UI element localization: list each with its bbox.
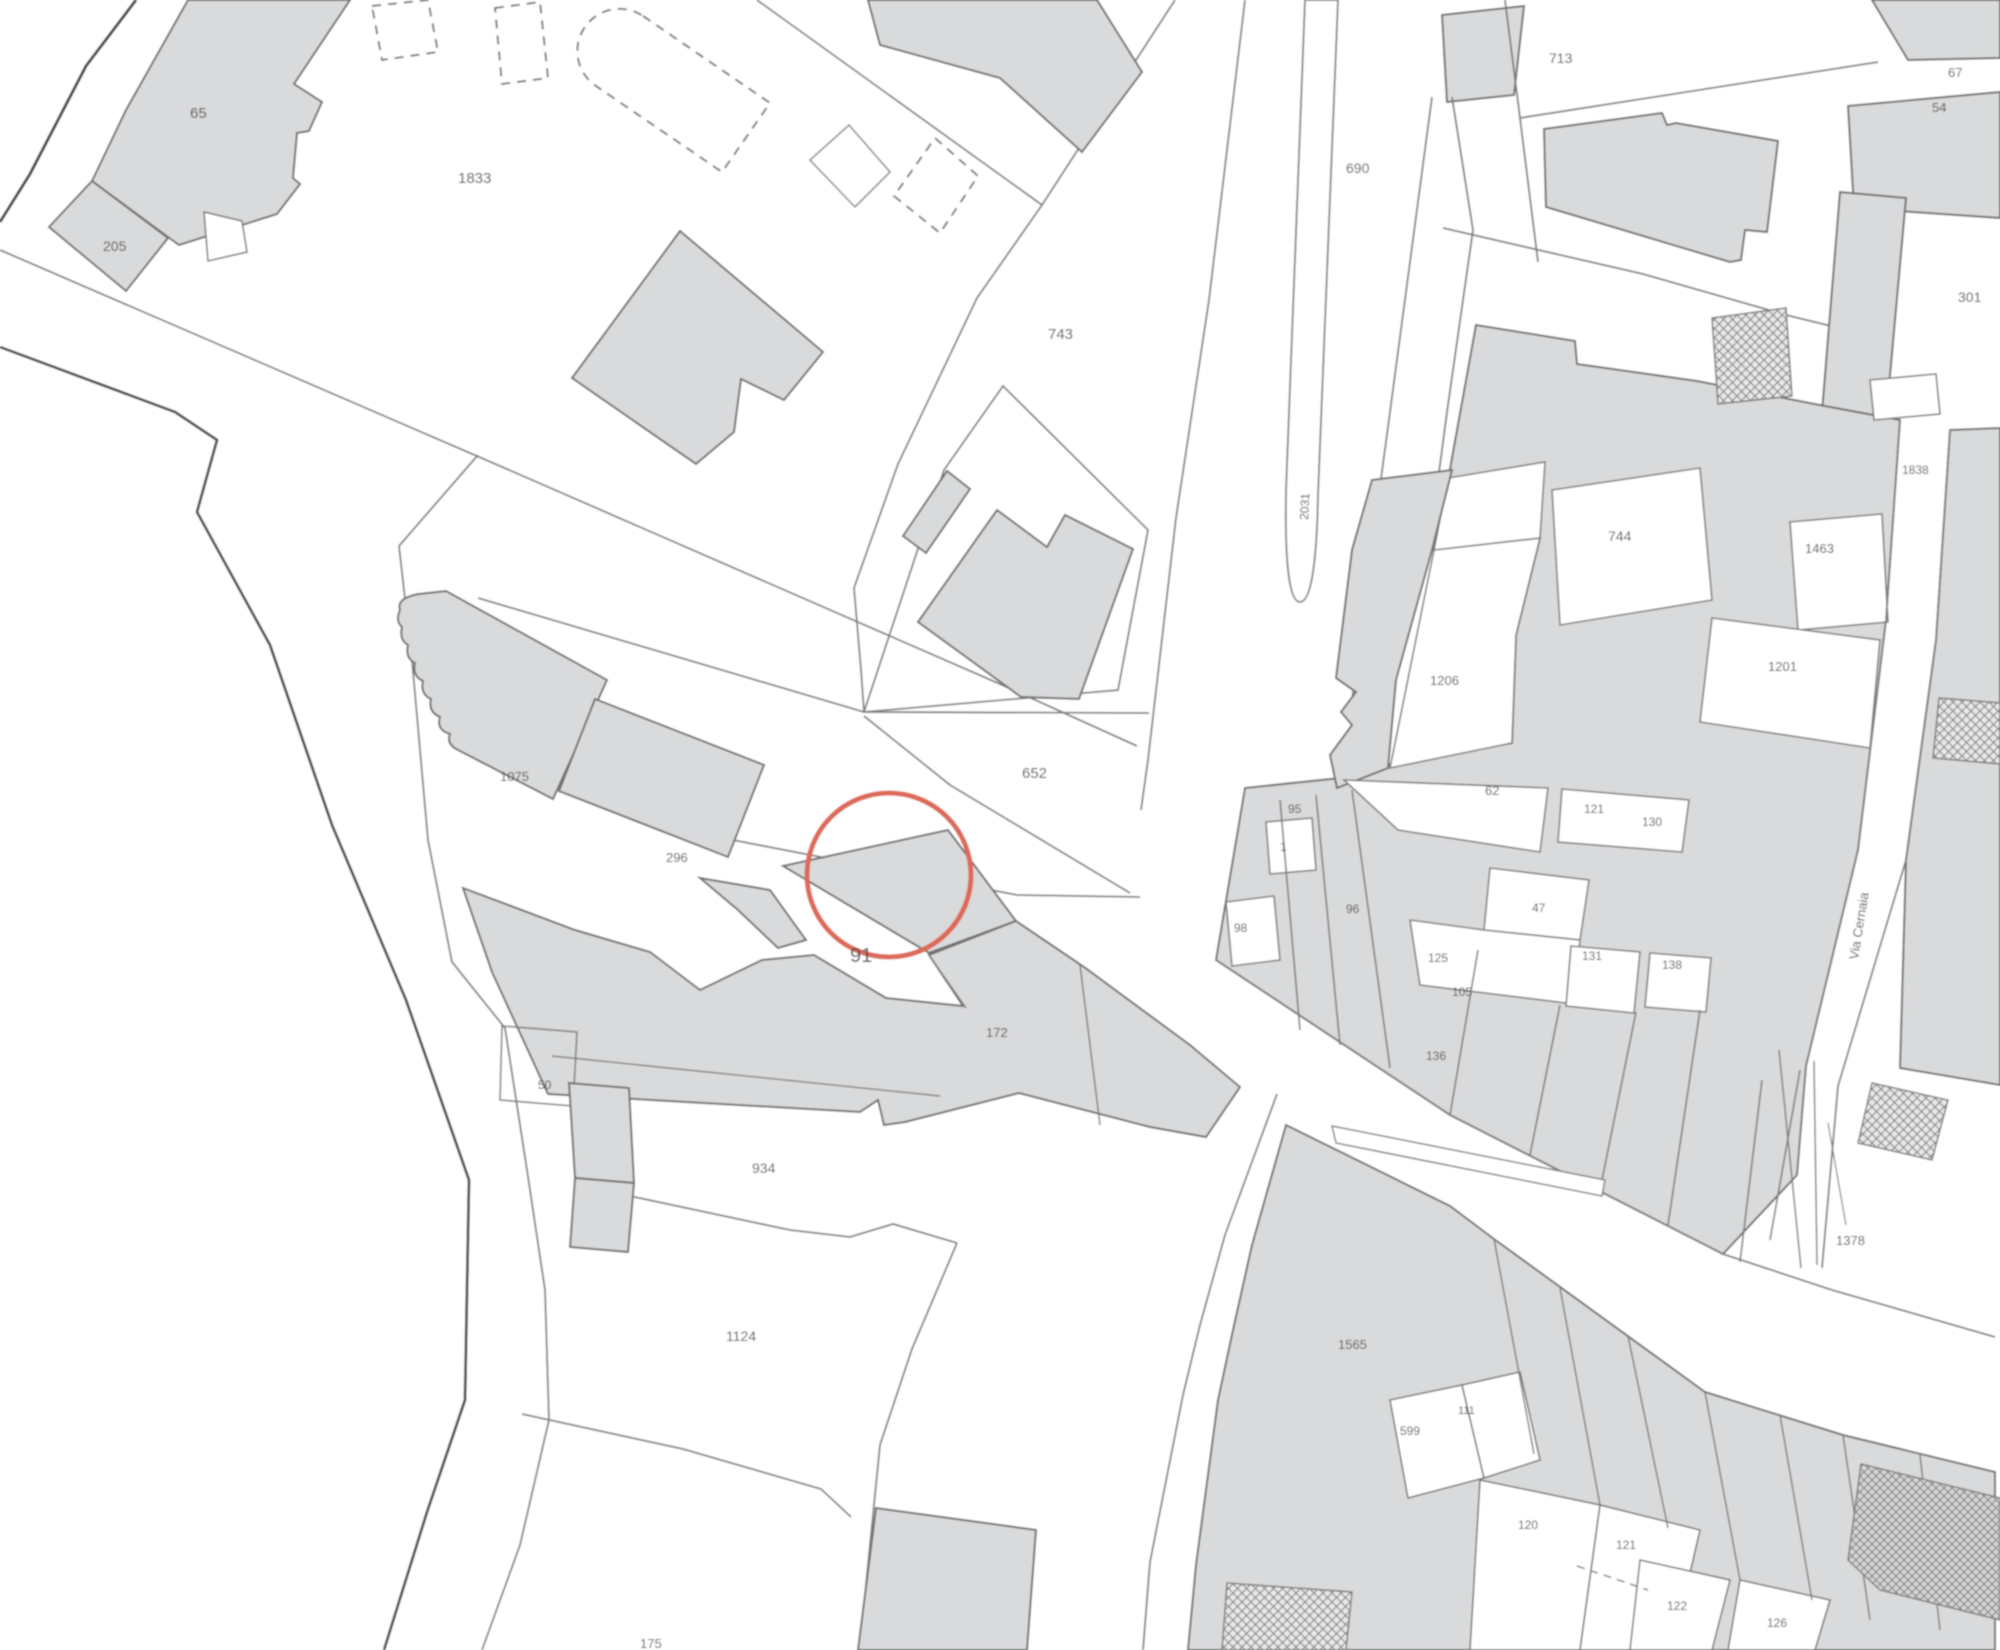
svg-text:126: 126 (1767, 1616, 1787, 1630)
svg-text:121: 121 (1584, 802, 1604, 816)
svg-text:743: 743 (1048, 326, 1073, 343)
svg-text:2031: 2031 (1297, 492, 1312, 520)
svg-text:121: 121 (1616, 1538, 1636, 1552)
svg-text:1075: 1075 (500, 769, 529, 784)
svg-text:91: 91 (850, 945, 872, 967)
svg-text:934: 934 (752, 1160, 776, 1176)
svg-text:98: 98 (1234, 921, 1248, 935)
svg-text:1201: 1201 (1768, 659, 1797, 674)
svg-text:131: 131 (1582, 949, 1602, 963)
svg-text:1206: 1206 (1430, 673, 1459, 688)
svg-text:713: 713 (1549, 50, 1573, 66)
svg-text:122: 122 (1667, 1599, 1687, 1613)
svg-text:1833: 1833 (458, 170, 491, 187)
svg-text:1565: 1565 (1338, 1337, 1367, 1352)
svg-text:599: 599 (1400, 1424, 1420, 1438)
svg-text:744: 744 (1608, 528, 1632, 544)
svg-text:1124: 1124 (726, 1328, 756, 1344)
svg-text:120: 120 (1518, 1518, 1538, 1532)
svg-text:1463: 1463 (1805, 541, 1834, 556)
svg-text:138: 138 (1662, 958, 1682, 972)
svg-text:125: 125 (1428, 951, 1448, 965)
svg-text:62: 62 (1485, 783, 1499, 798)
svg-text:1: 1 (1280, 840, 1287, 854)
svg-text:54: 54 (1932, 100, 1946, 115)
svg-text:296: 296 (666, 850, 688, 865)
svg-text:50: 50 (538, 1078, 552, 1092)
svg-text:47: 47 (1532, 901, 1546, 915)
svg-text:652: 652 (1022, 765, 1047, 782)
svg-text:301: 301 (1958, 289, 1982, 305)
svg-text:136: 136 (1426, 1049, 1446, 1063)
svg-text:1838: 1838 (1902, 463, 1929, 477)
svg-text:96: 96 (1346, 902, 1360, 916)
svg-text:690: 690 (1346, 160, 1370, 176)
svg-text:111: 111 (1458, 1405, 1475, 1417)
svg-text:205: 205 (103, 238, 127, 254)
svg-text:65: 65 (190, 105, 207, 122)
svg-text:95: 95 (1288, 802, 1302, 816)
svg-text:105: 105 (1452, 985, 1472, 999)
svg-text:130: 130 (1642, 815, 1662, 829)
svg-text:172: 172 (986, 1025, 1008, 1040)
svg-text:67: 67 (1948, 65, 1962, 80)
svg-text:175: 175 (640, 1636, 662, 1650)
svg-text:1378: 1378 (1836, 1233, 1865, 1248)
